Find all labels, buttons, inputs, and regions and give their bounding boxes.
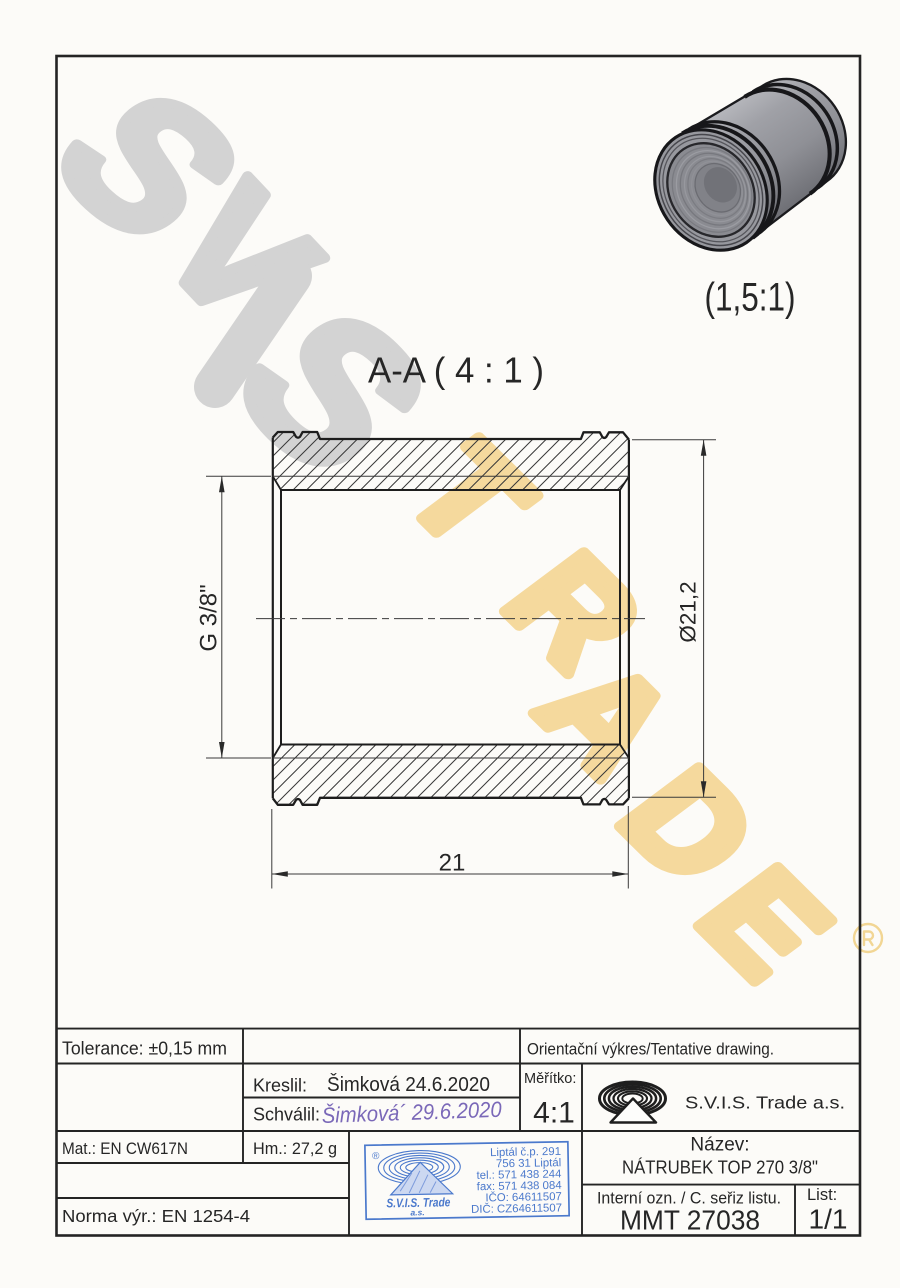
svg-text:Měřítko:: Měřítko: (524, 1071, 576, 1087)
svg-text:Název:: Název: (690, 1135, 749, 1156)
svg-text:a.s.: a.s. (410, 1207, 424, 1217)
svg-text:Ø21,2: Ø21,2 (676, 581, 701, 642)
svg-text:Tolerance: ±0,15 mm: Tolerance: ±0,15 mm (62, 1039, 227, 1059)
svg-text:4:1: 4:1 (533, 1097, 575, 1130)
svg-text:DIČ: CZ64611507: DIČ: CZ64611507 (471, 1201, 562, 1216)
svg-text:Hm.: 27,2 g: Hm.: 27,2 g (253, 1139, 337, 1158)
svg-text:Šimková´ 29.6.2020: Šimková´ 29.6.2020 (321, 1097, 502, 1128)
svg-text:Kreslil:: Kreslil: (253, 1076, 307, 1096)
svg-text:21: 21 (439, 850, 466, 877)
svg-text:Šimková 24.6.2020: Šimková 24.6.2020 (327, 1073, 490, 1096)
svg-text:A-A ( 4 : 1 ): A-A ( 4 : 1 ) (368, 350, 544, 391)
svg-text:MMT 27038: MMT 27038 (620, 1205, 760, 1236)
svg-text:(1,5:1): (1,5:1) (705, 276, 796, 320)
svg-text:G 3/8": G 3/8" (196, 584, 223, 651)
svg-text:NÁTRUBEK TOP 270 3/8": NÁTRUBEK TOP 270 3/8" (622, 1157, 818, 1178)
svg-text:Norma výr.: EN 1254-4: Norma výr.: EN 1254-4 (62, 1206, 250, 1226)
svg-text:Orientační výkres/Tentative dr: Orientační výkres/Tentative drawing. (527, 1041, 774, 1059)
svg-text:Mat.: EN CW617N: Mat.: EN CW617N (62, 1139, 188, 1158)
svg-text:S.V.I.S. Trade a.s.: S.V.I.S. Trade a.s. (685, 1093, 845, 1113)
svg-text:Schválil:: Schválil: (253, 1105, 320, 1125)
svg-text:1/1: 1/1 (809, 1204, 848, 1235)
svg-text:List:: List: (807, 1186, 837, 1204)
svg-text:®: ® (372, 1151, 380, 1162)
